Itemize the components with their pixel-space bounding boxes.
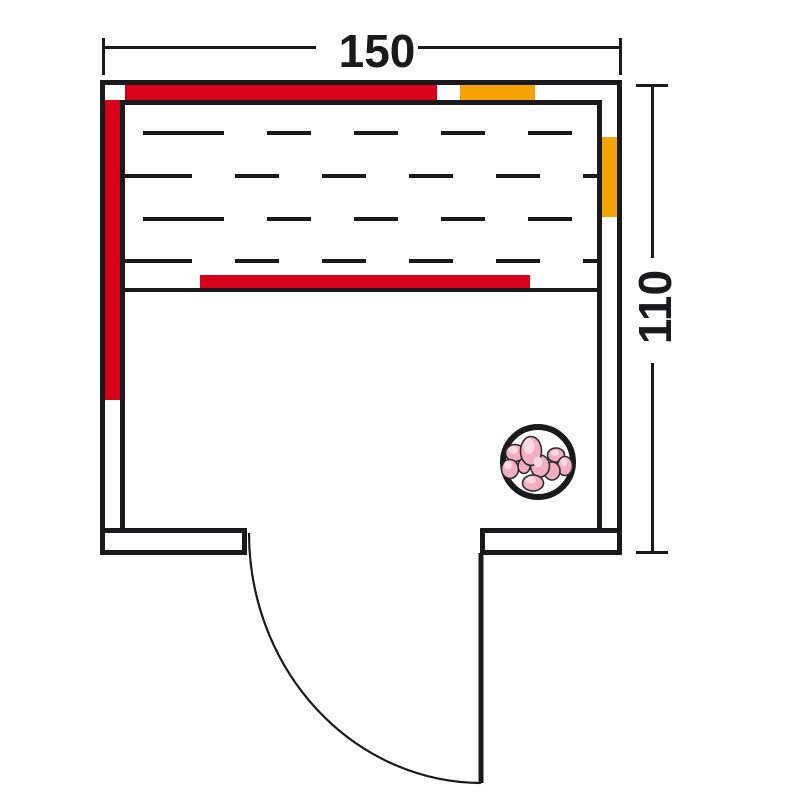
floor-plan-canvas: 150 110 xyxy=(0,0,800,800)
stone-highlight xyxy=(509,446,518,454)
door-swing-arc xyxy=(249,533,481,783)
door-leaf xyxy=(479,553,484,783)
stone-highlight xyxy=(534,457,543,468)
stone-highlight xyxy=(526,477,536,484)
stone-highlight xyxy=(504,461,512,470)
stone-highlight xyxy=(524,438,535,454)
heater-stones xyxy=(502,427,574,497)
stone-highlight xyxy=(551,450,559,456)
door-and-heater-layer xyxy=(0,0,800,800)
stone-highlight xyxy=(561,458,568,467)
